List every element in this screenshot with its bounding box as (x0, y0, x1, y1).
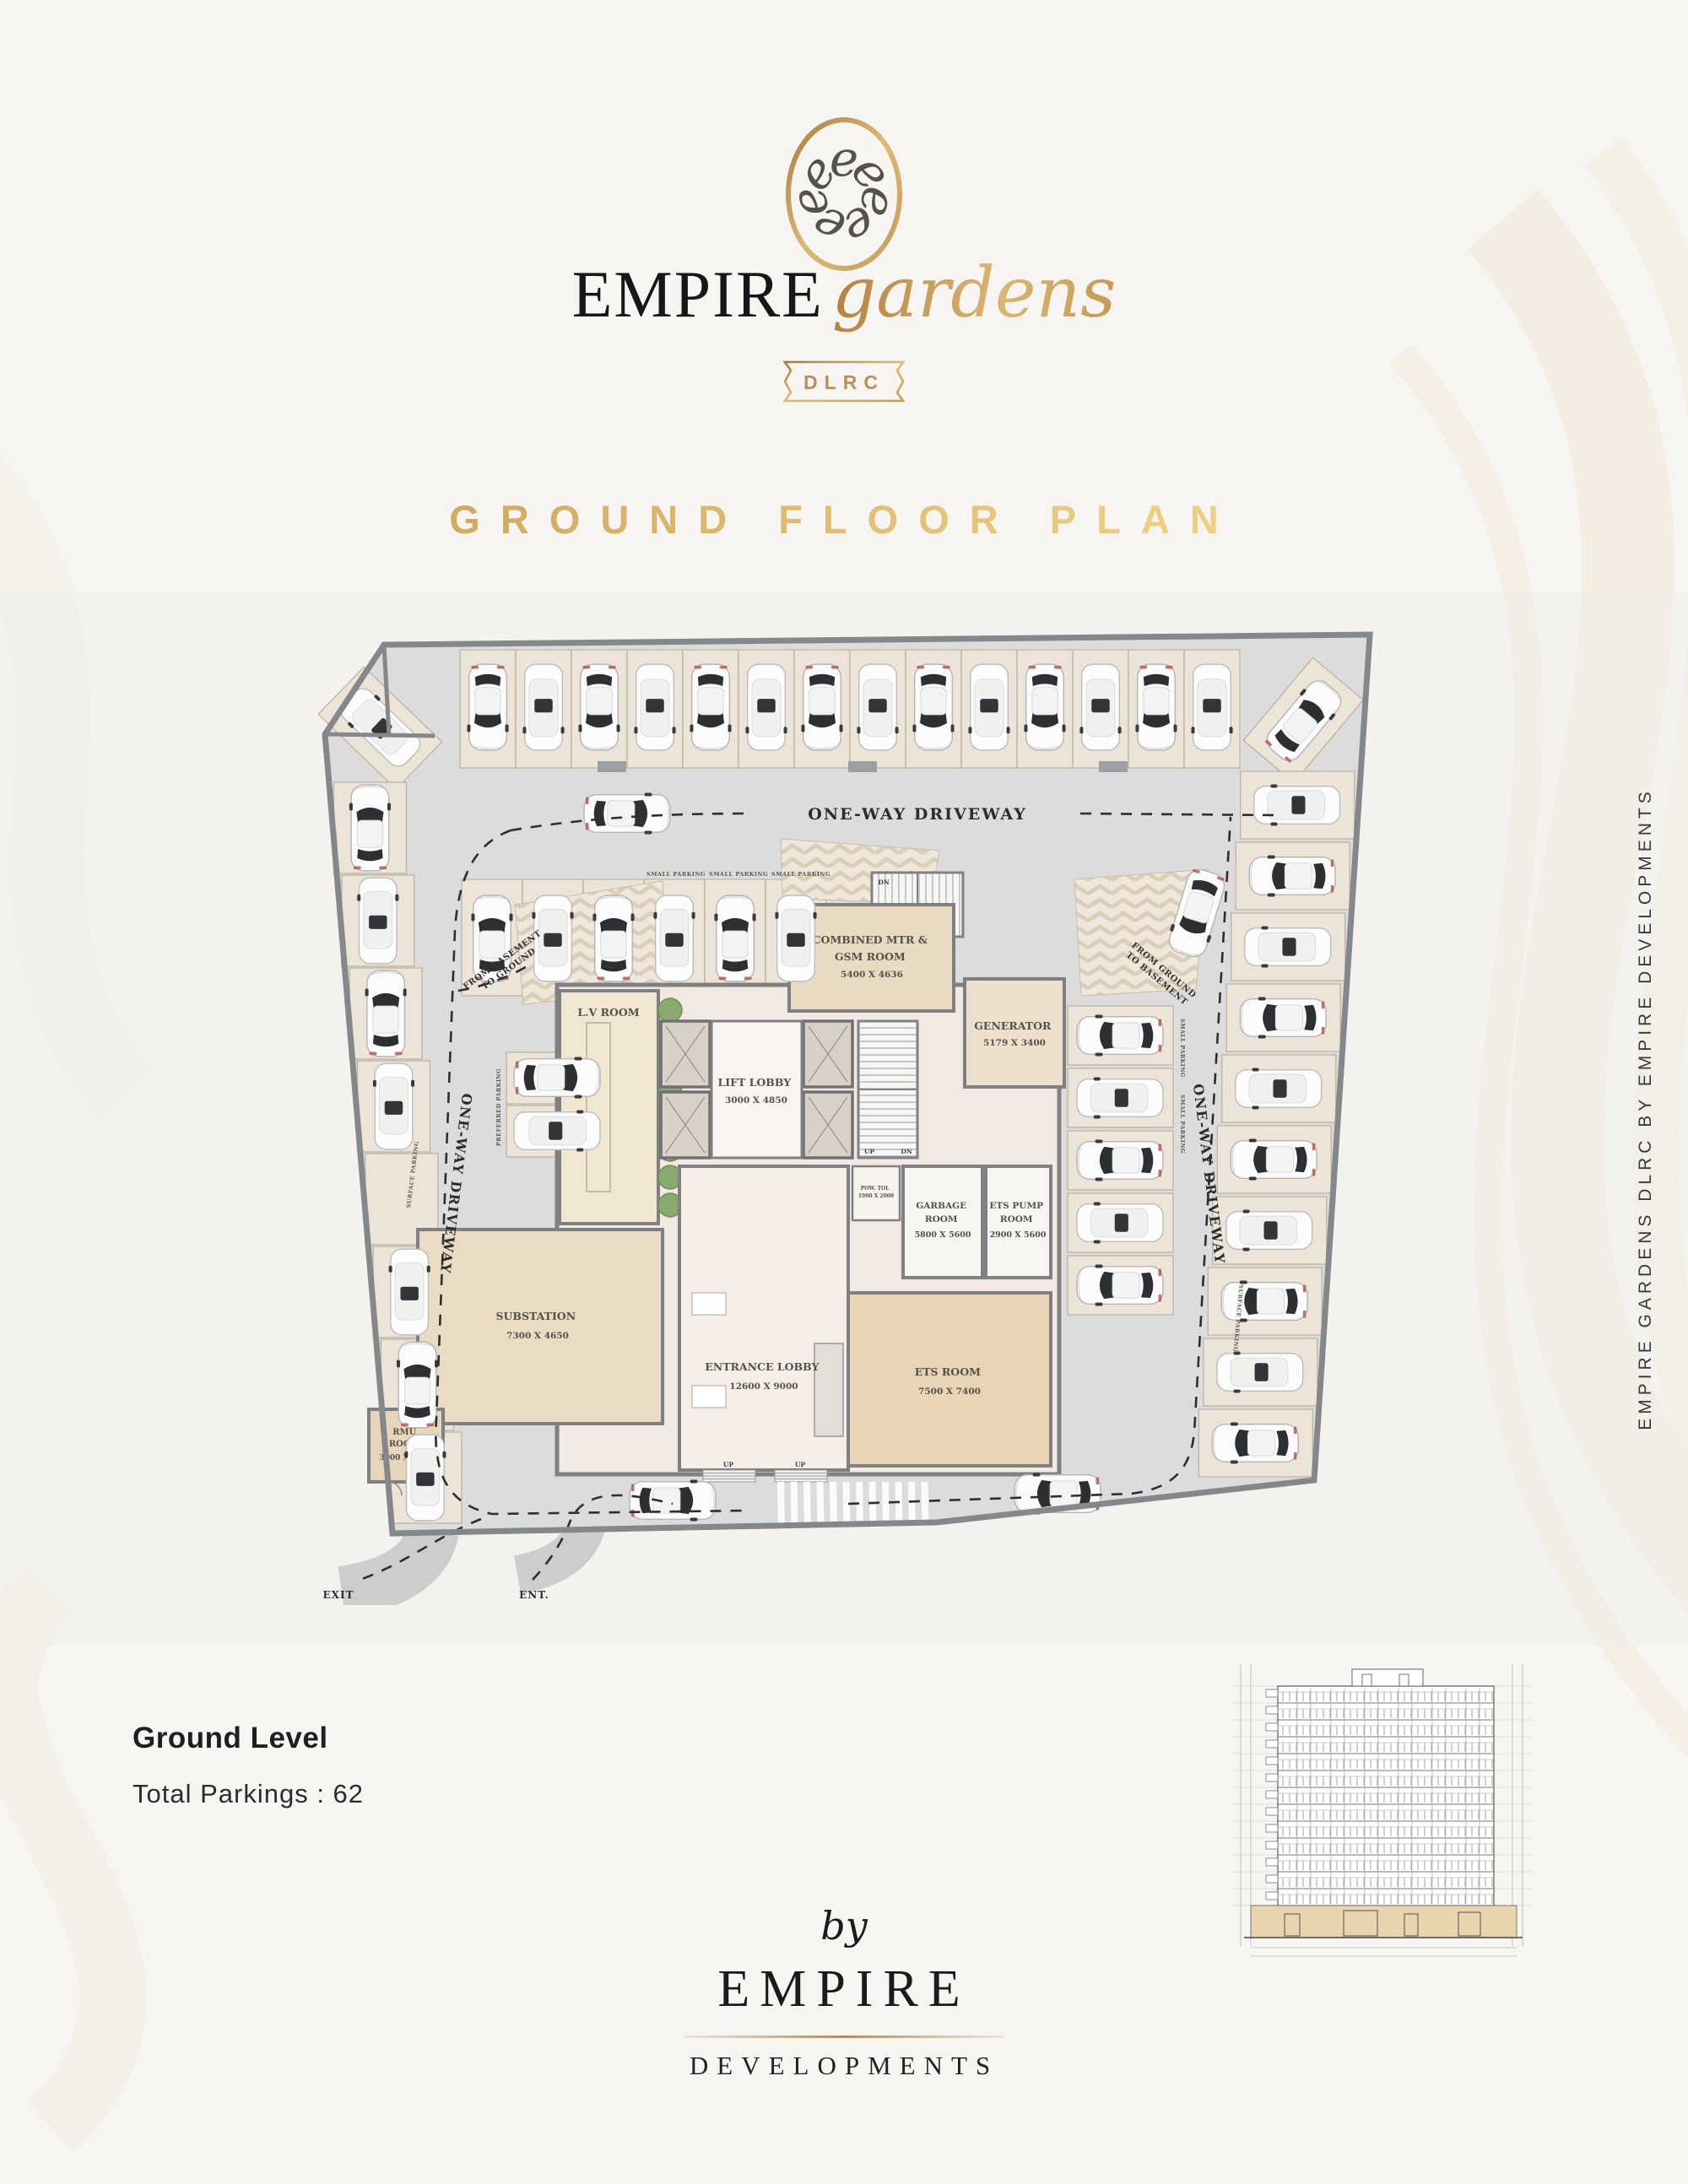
stairb-up-label: UP (864, 1148, 875, 1155)
stairb-dn-label: DN (901, 1148, 912, 1155)
footer-divider (684, 2035, 1004, 2038)
byline: by (0, 1903, 1688, 1949)
footer-brand-sub: DEVELOPMENTS (0, 2051, 1688, 2081)
dlrc-badge-text: DLRC (803, 371, 885, 393)
footer-brand: EMPIRE (0, 1960, 1688, 2019)
side-caption: EMPIRE GARDENS DLRC BY EMPIRE DEVELOPMEN… (1636, 776, 1656, 1442)
floor-plan: DN UP COMBINED MTR & GSM ROOM 5400 X 463… (308, 626, 1380, 1605)
ent-label: ENT. (519, 1589, 549, 1601)
stair-dn-label: DN (878, 878, 890, 886)
small-parking-label-5: SMALL PARKING (1179, 1095, 1186, 1154)
small-parking-label-4: SMALL PARKING (1179, 1019, 1186, 1078)
brochure-page: eeeeeee EMPIREgardens DLRC GROUND FLOOR … (0, 0, 1688, 2184)
page-title: GROUND FLOOR PLAN (0, 496, 1688, 543)
room-label-lv: L.V ROOM (577, 1006, 639, 1019)
small-parking-label-1: SMALL PARKING (647, 871, 706, 878)
brand-primary-text: EMPIRE (572, 257, 824, 331)
small-parking-label-2: SMALL PARKING (709, 871, 768, 878)
entry-up-2: UP (795, 1461, 806, 1468)
brand-script-text: gardens (832, 253, 1117, 333)
small-parking-label-3: SMALL PARKING (771, 871, 830, 878)
total-parkings: Total Parkings : 62 (133, 1779, 364, 1809)
one-way-driveway-top-label: ONE-WAY DRIVEWAY (808, 805, 1027, 824)
exit-label: EXIT (323, 1589, 354, 1601)
preferred-parking-label: PREFERRED PARKING (495, 1068, 502, 1146)
entry-up-1: UP (723, 1461, 734, 1468)
level-title: Ground Level (133, 1722, 328, 1755)
brand-wordmark: EMPIREgardens (0, 253, 1688, 333)
dlrc-badge: DLRC (0, 359, 1688, 408)
